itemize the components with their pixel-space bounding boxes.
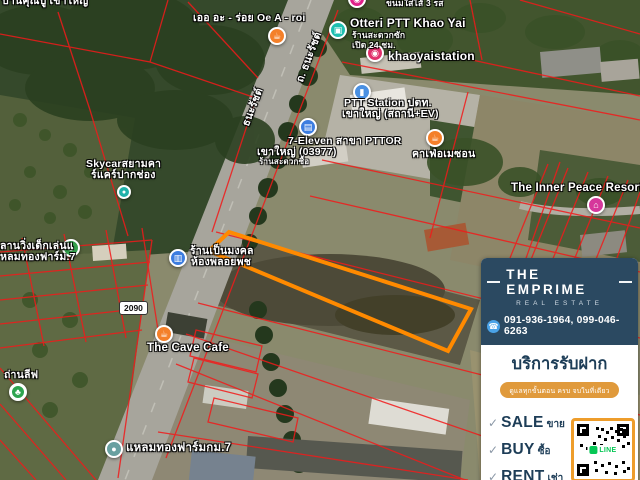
- label-charcoal[interactable]: ถ่านลีฟ: [4, 370, 38, 381]
- checklist-sale-en: SALE: [501, 414, 544, 432]
- farm-pin[interactable]: ●: [105, 440, 123, 458]
- label-shop-line2: ห้องพลอยพช: [191, 257, 251, 268]
- label-seven-line2: เขาใหญ่ (03977): [257, 147, 337, 158]
- laundry-icon: ▣: [334, 26, 343, 35]
- check-icon: ✓: [488, 443, 498, 457]
- phone-numbers[interactable]: 091-936-1964, 099-046-6263: [504, 315, 632, 337]
- cart-icon: ▥: [174, 254, 183, 263]
- line-logo-text: LINE: [599, 447, 616, 454]
- realtor-card-header: THE EMPRIME REAL ESTATE ☎ 091-936-1964, …: [481, 258, 638, 345]
- shop-cart-pin[interactable]: ▥: [169, 249, 187, 267]
- service-checklist: ✓ SALE ขาย ✓ BUY ซื้อ ✓ RENT เช่า: [488, 405, 565, 480]
- otteri-laundry-pin[interactable]: ▣: [329, 21, 347, 39]
- label-skycar-line2: ร์แคร์ปากช่อง: [91, 170, 156, 181]
- label-inner-peace[interactable]: The Inner Peace Resort: [511, 183, 640, 195]
- label-skycar-line1[interactable]: Skycarสยามคา: [86, 159, 161, 170]
- label-seven-line1[interactable]: 7-Eleven สาขา PTTOR: [288, 136, 402, 147]
- line-qr-code: LINE: [571, 418, 635, 480]
- check-icon: ✓: [488, 470, 498, 480]
- pin-icon: ◉: [353, 0, 361, 4]
- checklist-item-buy: ✓ BUY ซื้อ: [488, 441, 565, 459]
- label-cafe-amazon[interactable]: คาเฟ่อเมซอน: [412, 149, 475, 160]
- brand-name: THE EMPRIME: [506, 267, 613, 297]
- cave-cafe-pin[interactable]: ☕: [155, 325, 173, 343]
- farm-icon: ●: [111, 445, 116, 454]
- checklist-sale-th: ขาย: [547, 417, 565, 432]
- realtor-card: THE EMPRIME REAL ESTATE ☎ 091-936-1964, …: [481, 258, 638, 480]
- phone-icon: ☎: [487, 320, 500, 333]
- hotel-icon: ⌂: [593, 201, 598, 210]
- route-shield-2090: 2090: [119, 301, 148, 315]
- label-oe-a-roi[interactable]: เออ อะ - ร่อย Oe A - roi: [193, 13, 306, 24]
- service-title: บริการรับฝาก: [488, 351, 631, 377]
- inner-peace-hotel-pin[interactable]: ⌂: [587, 196, 605, 214]
- qr-corner-icon: [577, 424, 589, 436]
- label-seven-sub: ร้านสะดวกซื้อ: [259, 158, 309, 166]
- restaurant-icon: ☕: [273, 32, 281, 41]
- coffee-icon: ☕: [160, 330, 168, 339]
- line-logo: LINE: [587, 445, 618, 455]
- label-baan-khun-pu[interactable]: บ้านคุณปู่ เขาใหญ่: [2, 0, 88, 7]
- brand-divider-left: [487, 281, 500, 283]
- service-tagline-pill: ดูแลทุกขั้นตอน ครบ จบในที่เดียว: [500, 382, 618, 398]
- oe-a-roi-restaurant-pin[interactable]: ☕: [268, 27, 286, 45]
- label-otteri[interactable]: Otteri PTT Khao Yai: [350, 17, 466, 29]
- qr-corner-icon: [577, 464, 589, 476]
- brand-divider-right: [619, 281, 632, 283]
- checklist-rent-en: RENT: [501, 468, 544, 480]
- skycar-pin[interactable]: ●: [117, 185, 131, 199]
- leaf-icon: ♣: [15, 388, 21, 397]
- realtor-panel: THE EMPRIME REAL ESTATE ☎ 091-936-1964, …: [481, 258, 638, 480]
- qr-corner-icon: [617, 424, 629, 436]
- label-cave-cafe[interactable]: The Cave Cafe: [147, 343, 229, 355]
- store-icon: ▤: [304, 123, 313, 132]
- label-laem-thong-farm[interactable]: แหลมทองฟาร์มกม.7: [126, 443, 231, 455]
- checklist-item-sale: ✓ SALE ขาย: [488, 414, 565, 432]
- qr-modules: [596, 427, 599, 430]
- label-khaoyaistation[interactable]: khaoyaistation: [388, 50, 475, 62]
- checklist-rent-th: เช่า: [547, 471, 563, 480]
- carwash-icon: ●: [122, 189, 126, 196]
- charcoal-leaf-pin[interactable]: ♣: [9, 383, 27, 401]
- line-app-icon: [589, 446, 597, 454]
- fuel-icon: ▮: [360, 88, 365, 97]
- cafe-amazon-pin[interactable]: ☕: [426, 129, 444, 147]
- map-screenshot: ◉ ▣ ☕ ◉ ▮ ▤ ☕ ● ⌂ ♣ ▥ ☕ ♣ ● บ้านคุณปู่ เ…: [0, 0, 640, 480]
- label-playground-line2: หลมทองฟาร์ม.7: [0, 252, 76, 263]
- checklist-buy-th: ซื้อ: [538, 444, 551, 459]
- label-otteri-sub1: ร้านสะดวกซัก: [352, 31, 405, 40]
- seven-eleven-pin[interactable]: ▤: [299, 118, 317, 136]
- checklist-buy-en: BUY: [501, 441, 535, 459]
- brand-subtitle: REAL ESTATE: [487, 300, 632, 307]
- label-khanom[interactable]: ขนมใส่ไส้ 3 รส: [386, 0, 444, 8]
- coffee-icon: ☕: [431, 134, 439, 143]
- label-ptt-line1[interactable]: PTT Station ปตท.: [344, 98, 432, 109]
- check-icon: ✓: [488, 416, 498, 430]
- realtor-card-body: บริการรับฝาก ดูแลทุกขั้นตอน ครบ จบในที่เ…: [481, 345, 638, 480]
- checklist-item-rent: ✓ RENT เช่า: [488, 468, 565, 480]
- label-playground-line1[interactable]: ลานวิ่งเด็กเล่นแ: [0, 241, 74, 252]
- label-shop-line1[interactable]: ร้านเป็นมงคล: [190, 246, 254, 257]
- label-ptt-line2: เขาใหญ่ (สถานี+EV): [342, 109, 439, 120]
